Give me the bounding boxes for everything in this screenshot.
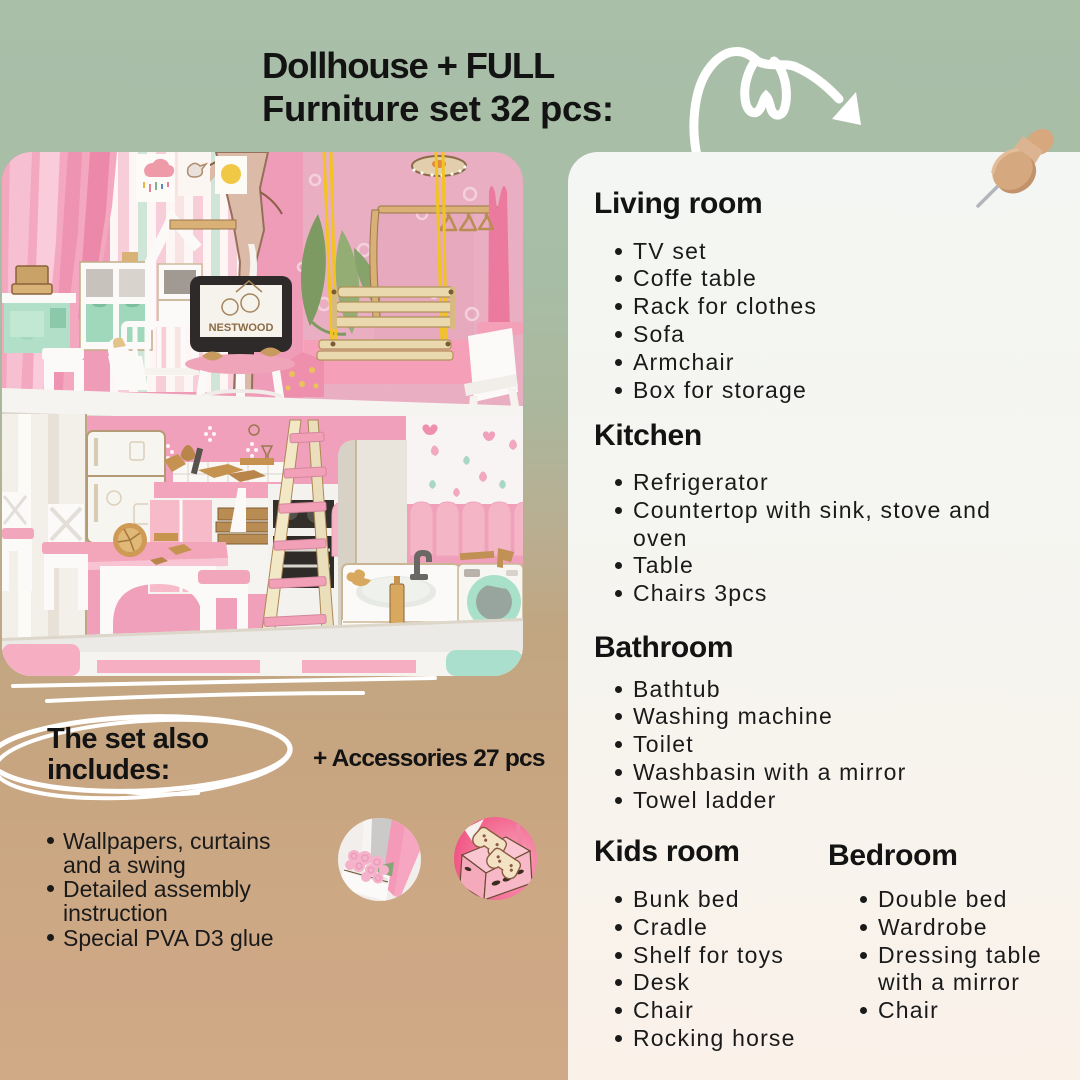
svg-text:NESTWOOD: NESTWOOD: [209, 322, 274, 334]
